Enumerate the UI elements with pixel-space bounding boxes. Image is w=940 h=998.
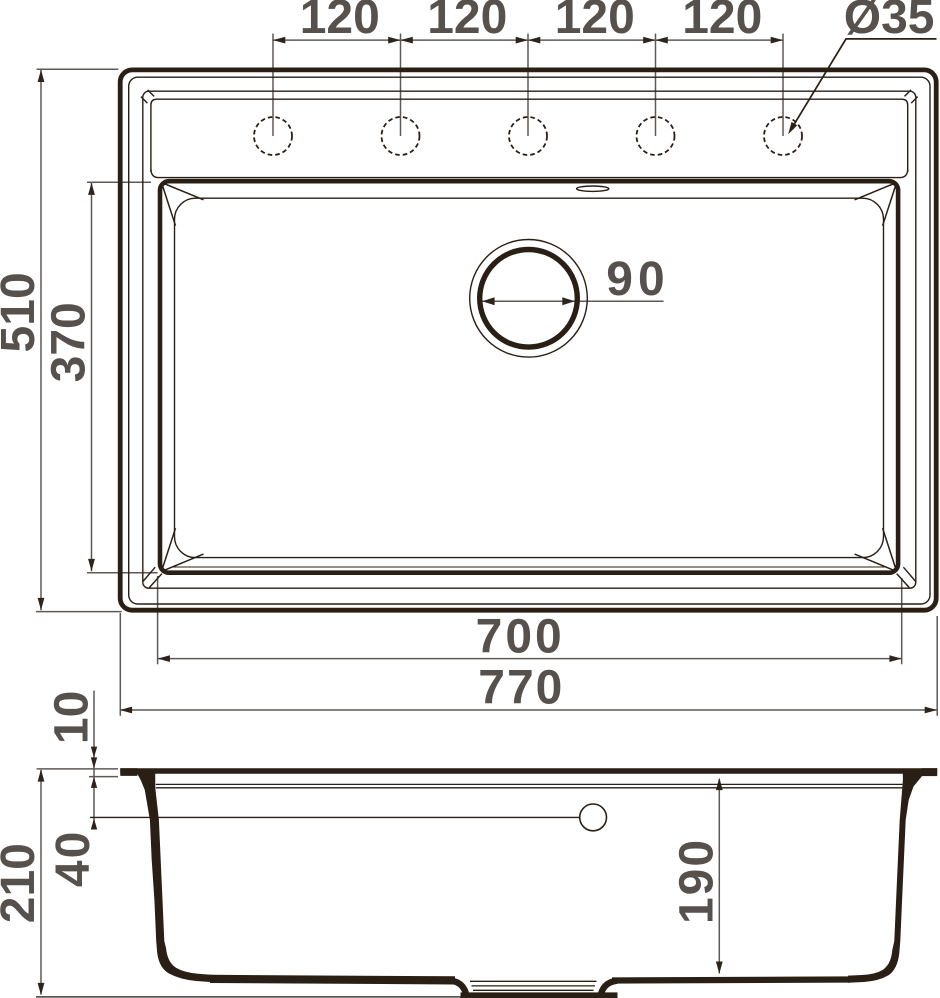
svg-text:210: 210 (0, 843, 45, 923)
svg-text:10: 10 (46, 691, 99, 744)
svg-text:90: 90 (606, 253, 669, 306)
svg-text:120: 120 (300, 0, 380, 44)
svg-text:40: 40 (47, 830, 100, 887)
svg-text:770: 770 (478, 662, 564, 715)
svg-text:120: 120 (555, 0, 635, 44)
svg-text:370: 370 (42, 302, 95, 382)
svg-text:190: 190 (671, 838, 724, 924)
svg-text:120: 120 (682, 0, 762, 44)
svg-text:510: 510 (0, 272, 45, 352)
svg-text:Ø35: Ø35 (844, 0, 935, 44)
svg-text:700: 700 (476, 610, 565, 663)
svg-text:120: 120 (427, 0, 507, 44)
